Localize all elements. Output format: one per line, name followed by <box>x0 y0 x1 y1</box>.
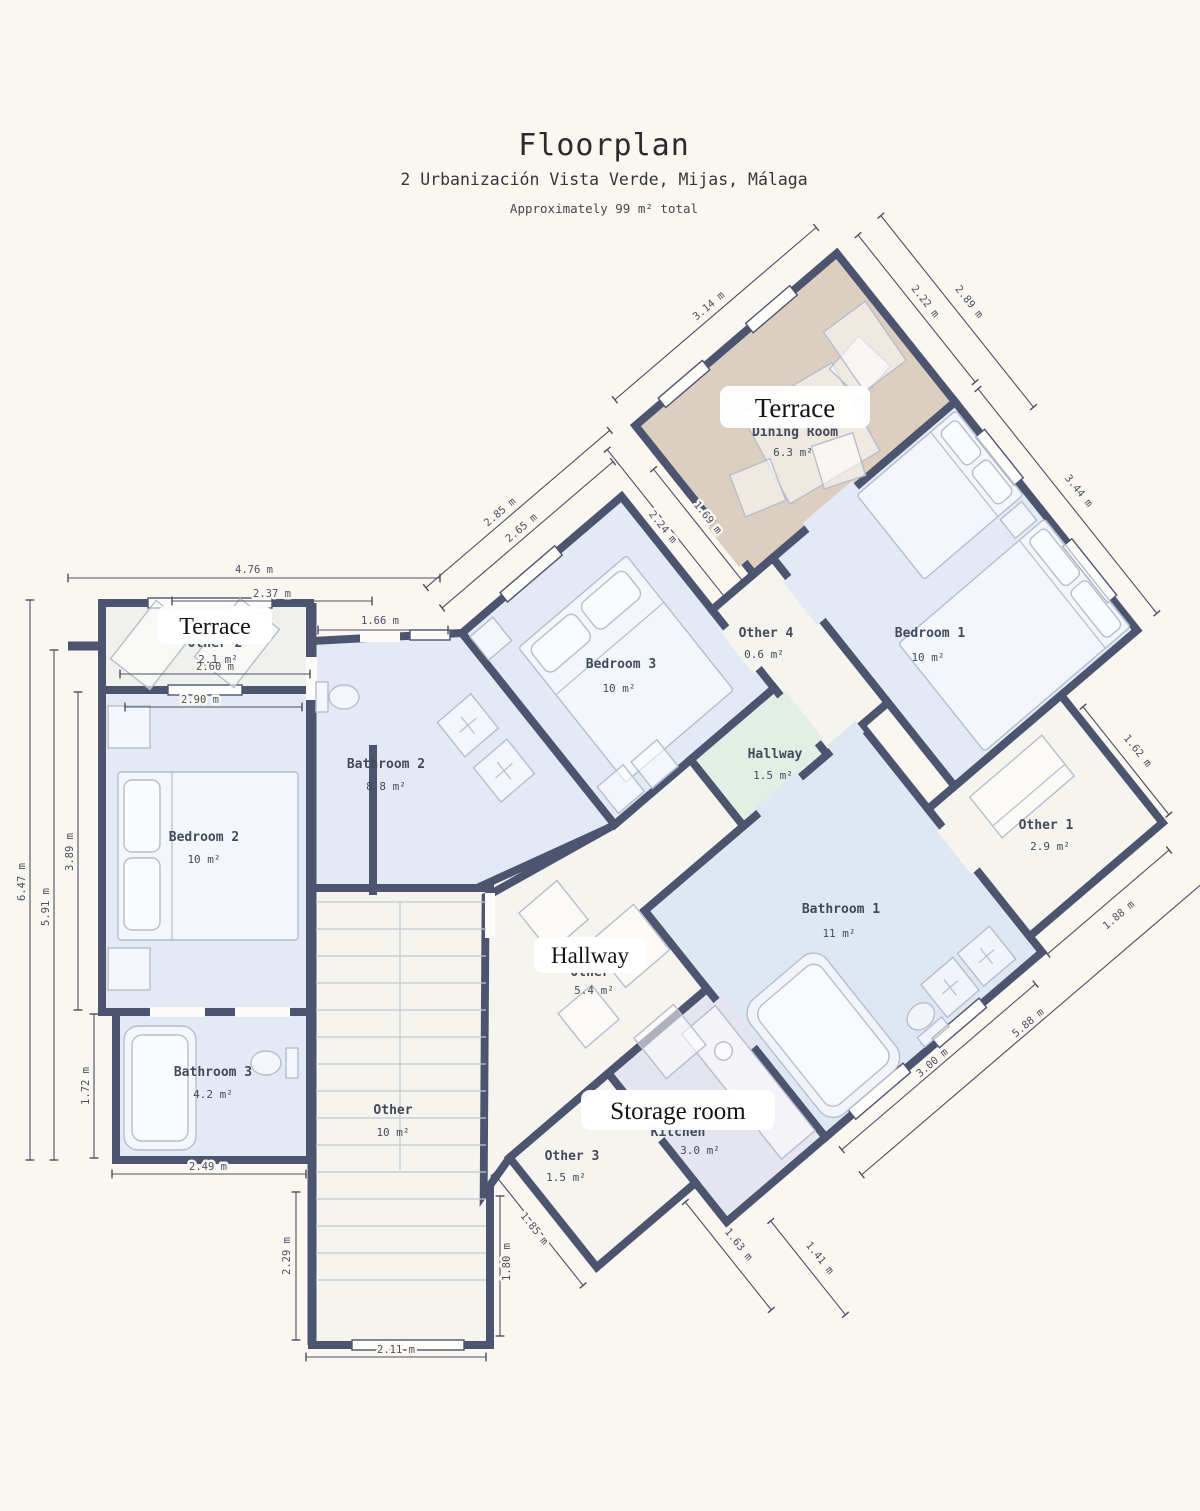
dim-4-76: 4.76 m <box>235 564 273 576</box>
terrace-top-pill-label: Terrace <box>755 393 836 423</box>
label-other2-area: 2.1 m² <box>198 653 238 666</box>
dim-3-44: 3.44 m <box>1062 472 1095 509</box>
label-bedroom1-name: Bedroom 1 <box>895 626 966 641</box>
label-bedroom3-area: 10 m² <box>602 682 635 695</box>
dim-2-90: 2.90 m <box>181 694 219 706</box>
label-bathroom2-area: 8.8 m² <box>366 780 406 793</box>
hallway-pill-label: Hallway <box>551 943 629 968</box>
dim-2-22: 2.22 m <box>909 283 942 320</box>
label-stairs-area: 10 m² <box>376 1126 409 1139</box>
label-kitchen-area: 3.0 m² <box>680 1144 720 1157</box>
label-bedroom2-area: 10 m² <box>187 853 220 866</box>
dim-1-66: 1.66 m <box>361 615 399 627</box>
dim-2-29: 2.29 m <box>281 1237 293 1275</box>
label-bathroom1-name: Bathroom 1 <box>802 902 880 917</box>
dim-5-91: 5.91 m <box>40 888 52 926</box>
address-line: 2 Urbanización Vista Verde, Mijas, Málag… <box>400 170 807 189</box>
label-stairs-name: Other <box>373 1103 412 1118</box>
dim-3-89: 3.89 m <box>64 833 76 871</box>
area-note: Approximately 99 m² total <box>510 201 698 216</box>
label-bathroom3-name: Bathroom 3 <box>174 1065 252 1080</box>
dim-1-41: 1.41 m <box>803 1239 836 1276</box>
dim-3-14: 3.14 m <box>691 289 727 323</box>
title-block: Floorplan 2 Urbanización Vista Verde, Mi… <box>400 128 807 216</box>
label-other3-name: Other 3 <box>545 1149 600 1164</box>
label-bedroom1-area: 10 m² <box>911 651 944 664</box>
dim-1-62: 1.62 m <box>1121 732 1154 769</box>
dim-2-37: 2.37 m <box>253 588 291 600</box>
label-bathroom1-area: 11 m² <box>822 927 855 940</box>
label-bedroom3-name: Bedroom 3 <box>586 657 656 672</box>
label-other1-area: 2.9 m² <box>1030 840 1070 853</box>
floorplan-page: Floorplan 2 Urbanización Vista Verde, Mi… <box>0 0 1200 1511</box>
label-other4-name: Other 4 <box>739 626 794 641</box>
bathroom-2-toilet <box>316 682 359 712</box>
label-other1-name: Other 1 <box>1019 818 1074 833</box>
label-hallway-small-area: 1.5 m² <box>753 769 793 782</box>
label-other3-area: 1.5 m² <box>546 1171 586 1184</box>
dim-6-47: 6.47 m <box>16 863 28 901</box>
dim-2-49: 2.49 m <box>189 1161 227 1173</box>
label-hallway-small-name: Hallway <box>748 747 803 762</box>
label-other4-area: 0.6 m² <box>744 648 784 661</box>
dim-5-88: 5.88 m <box>1010 1006 1046 1040</box>
dim-1-72: 1.72 m <box>80 1067 92 1105</box>
dim-2-11: 2.11 m <box>377 1344 415 1356</box>
floorplan-drawing: Floorplan 2 Urbanización Vista Verde, Mi… <box>0 0 1200 1511</box>
dim-1-63: 1.63 m <box>722 1226 755 1263</box>
label-bathroom2-name: Bathroom 2 <box>347 757 425 772</box>
page-title: Floorplan <box>518 128 690 163</box>
storage-pill-label: Storage room <box>610 1098 746 1125</box>
label-bathroom3-area: 4.2 m² <box>193 1088 233 1101</box>
label-hallway-main-area: 5.4 m² <box>574 984 614 997</box>
label-dining-area: 6.3 m² <box>773 446 813 459</box>
dim-1-80: 1.80 m <box>501 1243 513 1281</box>
label-bedroom2-name: Bedroom 2 <box>169 830 239 845</box>
dim-1-85: 1.85 m <box>518 1210 551 1247</box>
terrace-left-pill-label: Terrace <box>179 614 251 640</box>
dim-2-89: 2.89 m <box>953 283 986 320</box>
